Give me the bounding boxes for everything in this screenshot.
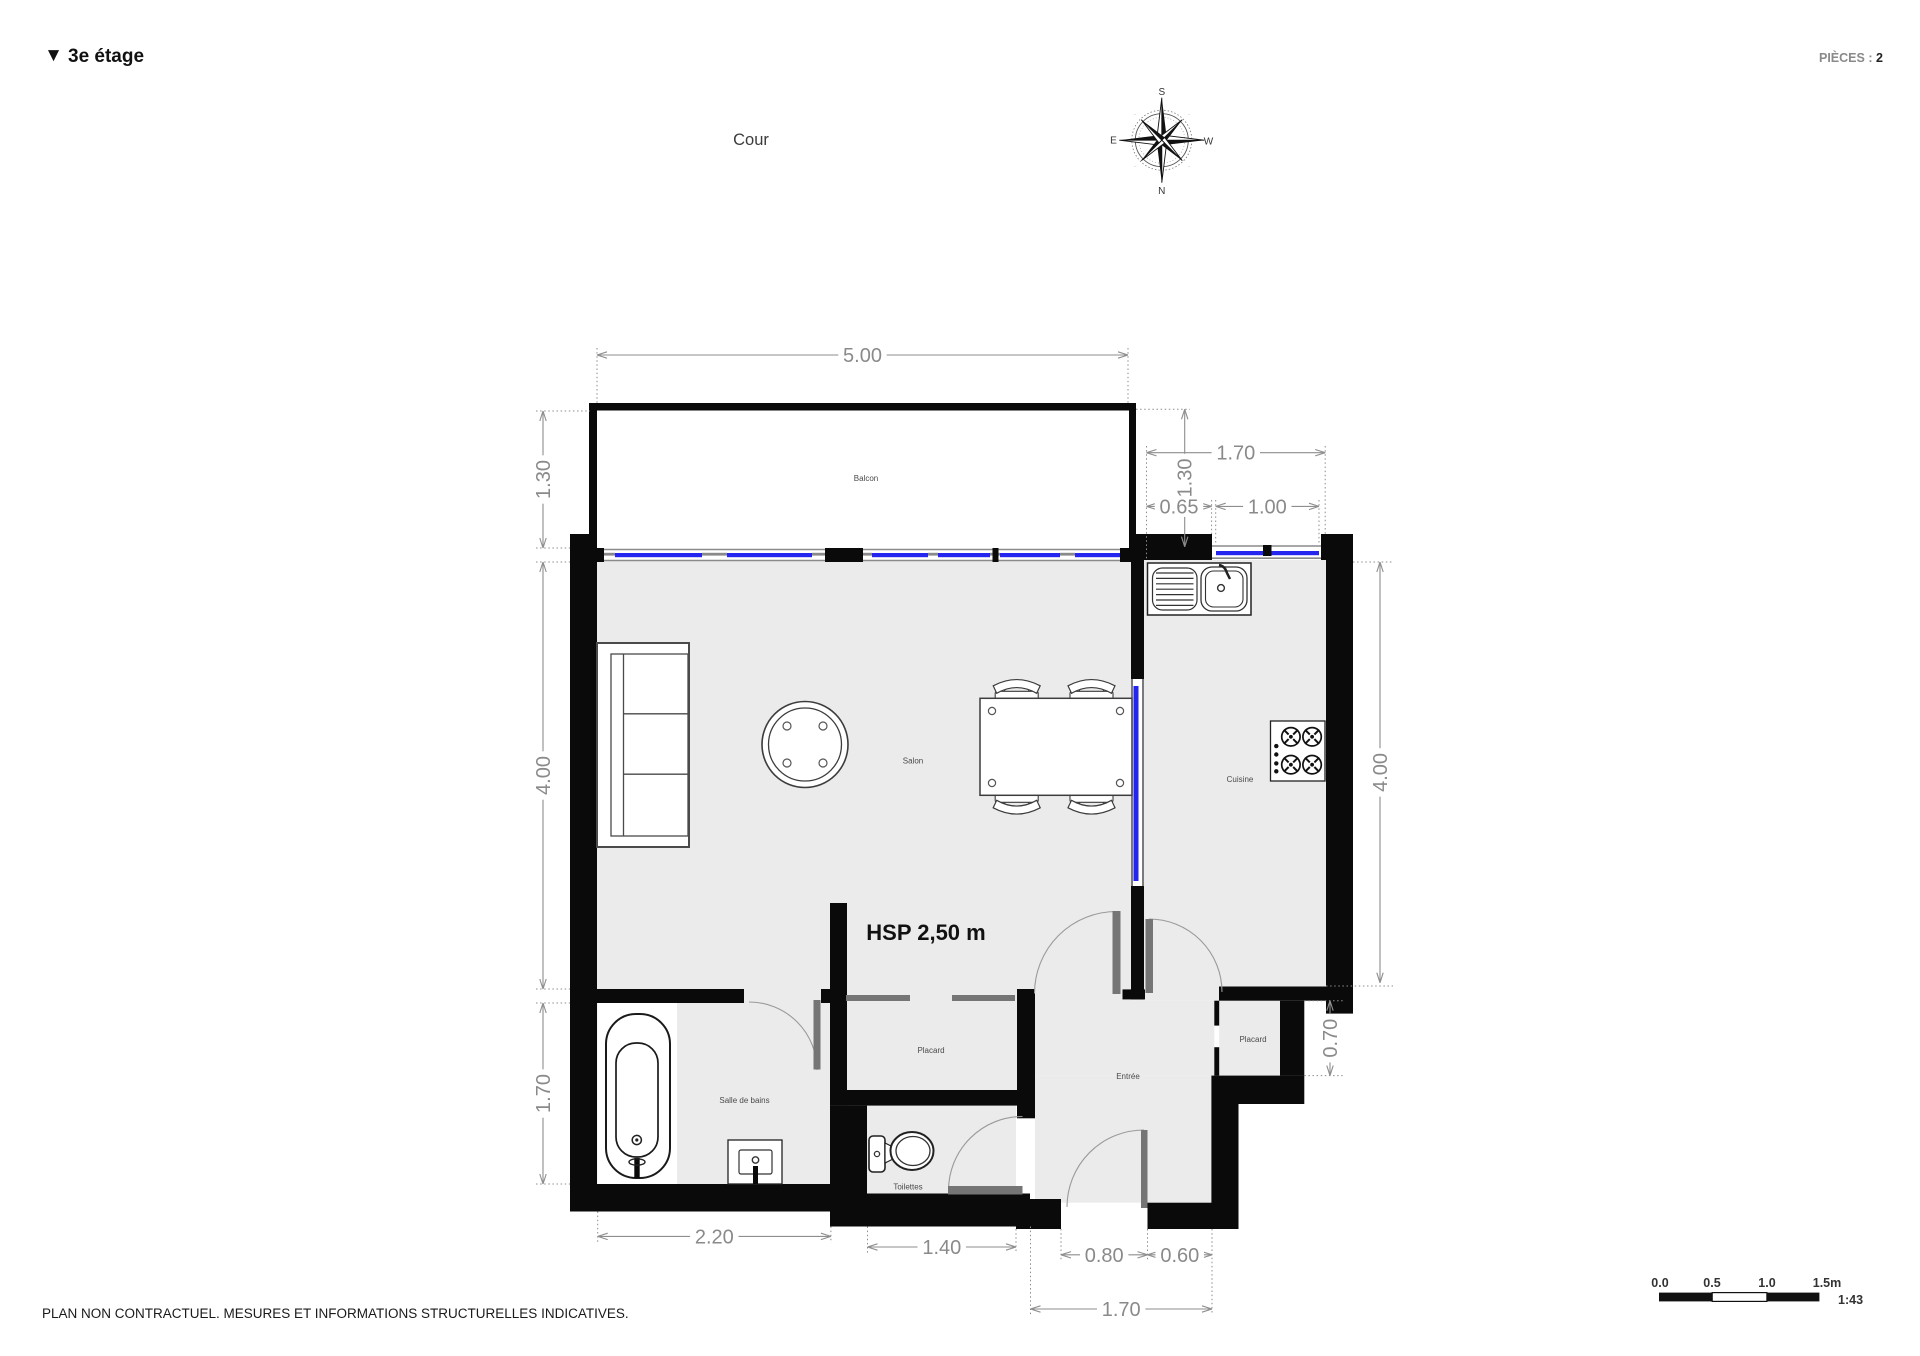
svg-text:0.80: 0.80 xyxy=(1085,1245,1124,1267)
svg-text:E: E xyxy=(1110,136,1117,147)
svg-text:▼: ▼ xyxy=(44,45,63,66)
svg-text:PLAN NON CONTRACTUEL. MESURES: PLAN NON CONTRACTUEL. MESURES ET INFORMA… xyxy=(42,1306,629,1321)
svg-text:1.30: 1.30 xyxy=(533,460,555,499)
svg-text:Cour: Cour xyxy=(733,131,769,149)
svg-text:1.70: 1.70 xyxy=(1102,1299,1141,1321)
svg-text:1.30: 1.30 xyxy=(1175,459,1197,498)
svg-text:4.00: 4.00 xyxy=(533,756,555,795)
svg-text:Entrée: Entrée xyxy=(1116,1072,1140,1081)
svg-text:·: · xyxy=(1134,112,1136,118)
svg-text:3e étage: 3e étage xyxy=(68,46,144,67)
svg-text:2.20: 2.20 xyxy=(695,1226,734,1248)
svg-text:S: S xyxy=(1158,87,1165,98)
svg-text:1.70: 1.70 xyxy=(533,1074,555,1113)
svg-text:0.0: 0.0 xyxy=(1651,1276,1668,1290)
svg-text:1.40: 1.40 xyxy=(922,1237,961,1259)
svg-text:PIÈCES : 2: PIÈCES : 2 xyxy=(1819,50,1883,65)
svg-text:1.00: 1.00 xyxy=(1248,496,1287,518)
svg-text:1:43: 1:43 xyxy=(1838,1293,1863,1307)
svg-text:Cuisine: Cuisine xyxy=(1227,775,1254,784)
svg-text:1.5m: 1.5m xyxy=(1813,1276,1842,1290)
svg-text:·: · xyxy=(1134,164,1136,170)
svg-text:·: · xyxy=(1188,112,1190,118)
svg-text:Balcon: Balcon xyxy=(854,474,878,483)
svg-text:N: N xyxy=(1158,186,1165,197)
svg-text:·: · xyxy=(1188,164,1190,170)
svg-text:Salle de bains: Salle de bains xyxy=(719,1096,769,1105)
svg-text:5.00: 5.00 xyxy=(843,345,882,367)
svg-text:HSP 2,50 m: HSP 2,50 m xyxy=(866,920,985,945)
svg-text:Salon: Salon xyxy=(903,757,923,766)
svg-text:Placard: Placard xyxy=(917,1046,944,1055)
svg-text:0.65: 0.65 xyxy=(1160,496,1199,518)
svg-text:0.60: 0.60 xyxy=(1160,1245,1199,1267)
svg-text:Toilettes: Toilettes xyxy=(893,1183,922,1192)
svg-text:W: W xyxy=(1204,137,1214,148)
svg-text:0.5: 0.5 xyxy=(1703,1276,1720,1290)
svg-text:0.70: 0.70 xyxy=(1320,1019,1342,1058)
svg-text:4.00: 4.00 xyxy=(1370,753,1392,792)
svg-text:Placard: Placard xyxy=(1239,1035,1266,1044)
svg-text:1.70: 1.70 xyxy=(1216,443,1255,465)
svg-text:1.0: 1.0 xyxy=(1758,1276,1775,1290)
